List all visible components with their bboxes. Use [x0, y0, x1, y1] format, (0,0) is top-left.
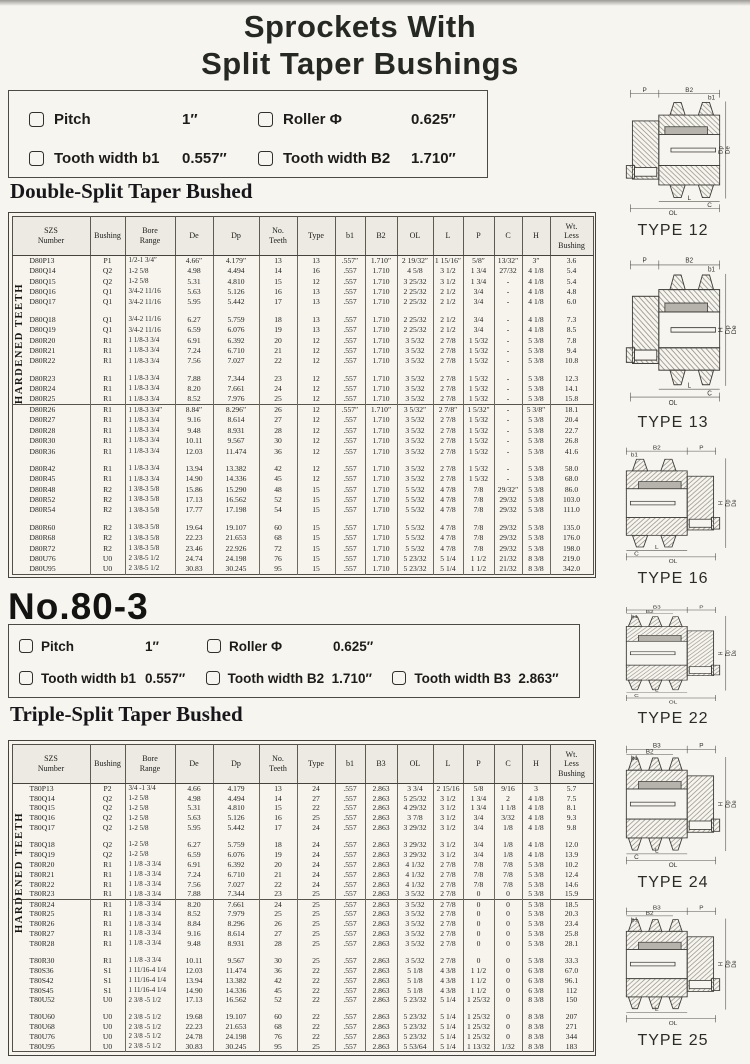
table-cell: 16	[259, 813, 297, 823]
table-cell: 0	[494, 909, 522, 919]
table-cell: .557	[335, 287, 365, 297]
table-row: T80R30R11 1/8 -3 3/410.119.5673025.5572.…	[12, 956, 593, 966]
table-cell: 2 7/8	[433, 899, 463, 909]
table-cell: R1	[90, 899, 125, 909]
table-cell: 176.0	[550, 533, 593, 543]
checkbox-icon	[258, 112, 273, 127]
table-cell: Q2	[90, 813, 125, 823]
table-cell: 2.863	[365, 880, 397, 890]
table-cell: 5 3/8	[522, 425, 550, 435]
table-cell: 2 7/8	[433, 929, 463, 939]
spec-label: Tooth width b1	[41, 671, 145, 686]
table-row: D80Q19Q13/4-2 11/166.596.0761913.5571.71…	[12, 325, 593, 335]
table-cell: 5 3/8	[522, 870, 550, 880]
table-cell: -	[494, 436, 522, 446]
table-cell: 25	[297, 899, 335, 909]
table-cell: R2	[90, 484, 125, 494]
spec-value: 0.625″	[333, 639, 373, 654]
table-cell: 2 7/8	[433, 384, 463, 394]
table-cell: 3 5/32	[397, 436, 433, 446]
table-cell: R1	[90, 394, 125, 404]
table-cell: 1 3/8-3 5/8	[125, 543, 175, 553]
table-cell: T80S45	[12, 985, 90, 995]
table-cell: 5 3/8	[522, 880, 550, 890]
table-cell: 68.0	[550, 474, 593, 484]
table-cell: 2 7/8″	[433, 405, 463, 415]
table-cell: 6 3/8	[522, 985, 550, 995]
table-cell: 96.1	[550, 976, 593, 986]
table-cell: 23.4	[550, 919, 593, 929]
table-cell: .557	[335, 909, 365, 919]
table-cell: 1-2 5/8	[125, 823, 175, 833]
table-cell: 1.710	[365, 335, 397, 345]
table-cell: 22	[297, 803, 335, 813]
table-cell: .557	[335, 564, 365, 574]
table-cell: 12.3	[550, 373, 593, 383]
table-cell: 14.336	[213, 474, 259, 484]
spec-label: Roller Φ	[283, 111, 411, 128]
table-cell: Q2	[90, 823, 125, 833]
table-cell: R1	[90, 956, 125, 966]
table-cell: 5 3/8	[522, 335, 550, 345]
table-row: T80R23R11 1/8 -3 3/47.887.3442325.5572.8…	[12, 889, 593, 899]
table-cell: 22	[297, 1032, 335, 1042]
table-cell: 103.0	[550, 495, 593, 505]
table-cell: .557	[335, 813, 365, 823]
table-cell: 1 1/8 -3 3/4	[125, 956, 175, 966]
table-row: T80R27R11 1/8 -3 3/49.168.6142725.5572.8…	[12, 929, 593, 939]
table-cell: 1 5/32	[463, 464, 494, 474]
svg-text:De: De	[731, 650, 738, 656]
column-header: OL	[397, 744, 433, 784]
table-row: D80R36R11 1/8-3 3/412.0311.4743612.5571.…	[12, 446, 593, 456]
table-cell: 5 3/8″	[522, 405, 550, 415]
table-cell: .557	[335, 346, 365, 356]
table-cell: 27	[297, 793, 335, 803]
table-cell: 30.83	[175, 1042, 213, 1052]
svg-text:b1: b1	[631, 453, 639, 459]
svg-text:De: De	[732, 499, 738, 507]
table-cell: .557	[335, 394, 365, 404]
table-cell: 22	[297, 966, 335, 976]
svg-text:L: L	[687, 195, 691, 202]
table-cell: 25	[297, 889, 335, 899]
table-cell: 3 5/32	[397, 956, 433, 966]
triple-split-table-wrap: SZS NumberBushingBore RangeDeDpNo. Teeth…	[8, 740, 596, 1056]
table-cell: 1 1/8-3 3/4″	[125, 405, 175, 415]
table-cell: 5 3/8	[522, 346, 550, 356]
header-row: SZS NumberBushingBore RangeDeDpNo. Teeth…	[12, 744, 593, 784]
table-cell: 1 1/2	[463, 554, 494, 564]
svg-text:P: P	[699, 446, 703, 452]
table-row: D80R60R21 3/8-3 5/819.6419.1076015.5571.…	[12, 522, 593, 532]
table-cell: 5.4	[550, 266, 593, 276]
table-cell: 4 7/8	[433, 505, 463, 515]
spec-label: Tooth width B2	[283, 150, 411, 167]
table-cell: 1 5/32	[463, 373, 494, 383]
table-cell: 3 1/2	[433, 276, 463, 286]
table-cell: 5.442	[213, 297, 259, 307]
table-cell: 1.710	[365, 356, 397, 366]
table-cell: 1 5/32	[463, 335, 494, 345]
table-cell: 2	[494, 793, 522, 803]
table-cell: -	[494, 425, 522, 435]
table-cell: 25	[259, 909, 297, 919]
table-row: D80U95U02 3/8-5 1/230.8330.2459515.5571.…	[12, 564, 593, 574]
table-row: T80S36S11 11/16-4 1/412.0311.4743622.557…	[12, 966, 593, 976]
table-cell: T80R30	[12, 956, 90, 966]
table-cell: 22	[297, 976, 335, 986]
table-cell: 1.710	[365, 564, 397, 574]
column-header: L	[433, 744, 463, 784]
table-cell: 2 7/8	[433, 394, 463, 404]
table-cell: 25	[297, 1042, 335, 1052]
table-cell: 4 1/8	[522, 813, 550, 823]
table-cell: 4.66	[175, 784, 213, 794]
table-cell: 6 3/8	[522, 976, 550, 986]
svg-text:OL: OL	[669, 1021, 678, 1026]
table-cell: 1.710	[365, 522, 397, 532]
type-12-label: TYPE 12	[602, 222, 744, 240]
table-cell: 2.863	[365, 985, 397, 995]
table-cell: 4 1/8	[522, 823, 550, 833]
checkbox-icon	[258, 151, 273, 166]
table-cell: 76	[259, 1032, 297, 1042]
table-cell: .557	[335, 939, 365, 949]
table-cell: 28.1	[550, 939, 593, 949]
table-cell: S1	[90, 985, 125, 995]
table-cell: 6.27	[175, 314, 213, 324]
table-cell: 18.5	[550, 899, 593, 909]
header-row: SZS NumberBushingBore RangeDeDpNo. Teeth…	[12, 216, 593, 256]
table-cell: 13	[297, 297, 335, 307]
table-cell: 2.863	[365, 870, 397, 880]
table-cell: 13.9	[550, 850, 593, 860]
table-cell: 1.710	[365, 266, 397, 276]
table-cell: 45	[259, 474, 297, 484]
table-cell: 2.863	[365, 1022, 397, 1032]
table-cell: 8.614	[213, 415, 259, 425]
table-cell: 3 1/2	[433, 266, 463, 276]
table-cell: 1 13/32	[463, 1042, 494, 1052]
table-cell: .557	[335, 436, 365, 446]
spec-box-double: Pitch1″Roller Φ0.625″Tooth width b10.557…	[8, 90, 488, 178]
table-cell: .557	[335, 793, 365, 803]
table-cell: 19	[259, 325, 297, 335]
table-cell: 2 15/16	[433, 784, 463, 794]
column-header: H	[522, 216, 550, 256]
table-cell: 8.84	[175, 919, 213, 929]
table-cell: 5.95	[175, 823, 213, 833]
table-cell: 0	[494, 956, 522, 966]
table-cell: 36	[259, 966, 297, 976]
table-cell: 1.710	[365, 346, 397, 356]
table-cell: -	[494, 356, 522, 366]
table-cell: 19	[259, 850, 297, 860]
table-cell: .557	[335, 870, 365, 880]
table-cell: 7/8	[494, 870, 522, 880]
table-cell: 12.4	[550, 870, 593, 880]
table-cell: 1 1/8 -3 3/4	[125, 889, 175, 899]
table-row: T80R24R11 1/8 -3 3/48.207.6612425.5572.8…	[12, 899, 593, 909]
table-cell: 4 7/8	[433, 533, 463, 543]
spec-value: 0.557″	[145, 671, 185, 686]
table-row: D80R24R11 1/8-3 3/48.207.6612412.5571.71…	[12, 384, 593, 394]
table-cell: 27	[259, 415, 297, 425]
svg-text:b1: b1	[631, 918, 639, 924]
table-cell: -	[494, 373, 522, 383]
data-table: SZS NumberBushingBore RangeDeDpNo. Teeth…	[12, 744, 594, 1053]
type-25-label: TYPE 25	[602, 1032, 744, 1050]
table-cell: 3 5/32	[397, 446, 433, 456]
svg-text:De: De	[731, 800, 738, 808]
hardened-teeth-label-2: HARDENED TEETH	[14, 812, 25, 933]
table-cell: -	[494, 325, 522, 335]
table-cell: P2	[90, 784, 125, 794]
table-cell: 4 7/8	[433, 495, 463, 505]
table-cell: 1 1/8-3 3/4	[125, 356, 175, 366]
table-cell: 4 1/8	[522, 793, 550, 803]
table-cell: 23	[259, 373, 297, 383]
table-cell: U0	[90, 1032, 125, 1042]
table-cell: 1 1/8-3 3/4	[125, 436, 175, 446]
table-cell: D80R72	[12, 543, 90, 553]
column-header: De	[175, 744, 213, 784]
table-cell: 1 1/8-3 3/4	[125, 346, 175, 356]
table-cell: R1	[90, 909, 125, 919]
table-cell: 0	[463, 899, 494, 909]
table-cell: T80U95	[12, 1042, 90, 1052]
table-cell: 3 3/4	[397, 784, 433, 794]
spec-label: Tooth width B2	[228, 671, 332, 686]
table-cell: 4 3/8	[433, 966, 463, 976]
table-cell: Q1	[90, 314, 125, 324]
table-cell: T80U60	[12, 1012, 90, 1022]
table-cell: 0	[494, 939, 522, 949]
table-cell: 8.931	[213, 939, 259, 949]
table-cell: 1.710	[365, 325, 397, 335]
table-cell: 3 7/8	[397, 813, 433, 823]
table-cell: 5 53/64	[397, 1042, 433, 1052]
svg-text:De: De	[724, 146, 731, 154]
table-cell: 7/8	[494, 880, 522, 890]
table-cell: 25	[297, 909, 335, 919]
table-cell: S1	[90, 976, 125, 986]
table-cell: 19.64	[175, 522, 213, 532]
spec-item: Pitch1″	[29, 111, 258, 128]
table-cell: 14.90	[175, 985, 213, 995]
table-cell: 5 3/8	[522, 356, 550, 366]
table-cell: 3 1/2	[433, 803, 463, 813]
table-cell: 22.23	[175, 1022, 213, 1032]
table-cell: 1.710	[365, 276, 397, 286]
table-cell: 14.1	[550, 384, 593, 394]
table-cell: 2 7/8	[433, 464, 463, 474]
table-cell: 86.0	[550, 484, 593, 494]
table-cell: 13/32″	[494, 256, 522, 266]
table-cell: 3 1/2	[433, 793, 463, 803]
table-cell: 8.931	[213, 425, 259, 435]
table-cell: 2.863	[365, 919, 397, 929]
svg-text:C: C	[634, 854, 639, 861]
table-cell: 5 1/4	[433, 1032, 463, 1042]
table-cell: 9.16	[175, 415, 213, 425]
table-cell: 42	[259, 464, 297, 474]
table-cell: 5 1/4	[433, 995, 463, 1005]
table-cell: 2 7/8	[433, 889, 463, 899]
table-cell: 22	[259, 356, 297, 366]
table-cell: R1	[90, 880, 125, 890]
table-cell: 1 3/8-3 5/8	[125, 484, 175, 494]
group-spacer	[12, 833, 593, 840]
table-cell: 0	[494, 1022, 522, 1032]
table-cell: 7.976	[213, 394, 259, 404]
type-25-diagram: B3B2b1PHDpDeLOL	[602, 904, 744, 1031]
table-cell: 6 3/8	[522, 966, 550, 976]
table-cell: 3 25/32	[397, 276, 433, 286]
svg-text:C: C	[634, 694, 639, 699]
table-cell: 9.48	[175, 425, 213, 435]
table-cell: R1	[90, 464, 125, 474]
table-cell: 8 3/8	[522, 564, 550, 574]
svg-text:b1: b1	[708, 266, 715, 273]
table-cell: 7.5	[550, 793, 593, 803]
table-cell: 24.198	[213, 1032, 259, 1042]
table-cell: 7.88	[175, 889, 213, 899]
table-cell: 3/4	[463, 840, 494, 850]
svg-text:P: P	[699, 605, 704, 610]
table-cell: 54	[259, 505, 297, 515]
table-cell: 1.710	[365, 484, 397, 494]
table-cell: 5.126	[213, 287, 259, 297]
table-cell: 17.198	[213, 505, 259, 515]
checkbox-icon	[19, 639, 33, 653]
column-header: OL	[397, 216, 433, 256]
table-cell: R1	[90, 889, 125, 899]
table-cell: 5.31	[175, 803, 213, 813]
svg-text:B2: B2	[646, 748, 654, 755]
table-cell: 4 3/8	[433, 976, 463, 986]
table-cell: T80U68	[12, 1022, 90, 1032]
table-cell: 18	[259, 840, 297, 850]
table-cell: 10.11	[175, 956, 213, 966]
table-cell: .557	[335, 474, 365, 484]
table-cell: 2.863	[365, 956, 397, 966]
table-cell: T80S36	[12, 966, 90, 976]
column-header: Bore Range	[125, 216, 175, 256]
table-cell: 7.344	[213, 373, 259, 383]
table-cell: 17.77	[175, 505, 213, 515]
table-cell: .557	[335, 384, 365, 394]
table-cell: 5 3/8	[522, 436, 550, 446]
table-cell: 21/32	[494, 564, 522, 574]
table-cell: 1-2 5/8	[125, 266, 175, 276]
table-cell: 24.78	[175, 1032, 213, 1042]
table-cell: 1 15/16″	[433, 256, 463, 266]
svg-text:H: H	[718, 501, 724, 505]
table-cell: 7.88	[175, 373, 213, 383]
table-cell: 19.107	[213, 522, 259, 532]
table-cell: Q1	[90, 325, 125, 335]
table-cell: 95	[259, 1042, 297, 1052]
table-cell: .557	[335, 803, 365, 813]
table-cell: 9.567	[213, 956, 259, 966]
table-cell: 4 1/8	[522, 803, 550, 813]
table-cell: 12	[297, 394, 335, 404]
table-cell: .557	[335, 889, 365, 899]
svg-text:C: C	[707, 390, 712, 397]
table-cell: 12	[297, 474, 335, 484]
table-cell: 22	[297, 985, 335, 995]
table-cell: R1	[90, 425, 125, 435]
table-cell: 2.863	[365, 976, 397, 986]
svg-text:P: P	[642, 87, 646, 94]
table-cell: 5 3/8	[522, 464, 550, 474]
table-cell: -	[494, 415, 522, 425]
table-cell: 41.6	[550, 446, 593, 456]
table-cell: 2.863	[365, 1012, 397, 1022]
table-cell: .557	[335, 919, 365, 929]
table-cell: 2 7/8	[433, 880, 463, 890]
table-cell: .557	[335, 522, 365, 532]
table-cell: 3/4	[463, 297, 494, 307]
table-cell: 2 3/8-5 1/2	[125, 564, 175, 574]
table-cell: 27/32	[494, 266, 522, 276]
table-cell: 2.863	[365, 909, 397, 919]
table-cell: 2 3/8 -5 1/2	[125, 1022, 175, 1032]
table-row: T80Q16Q21-2 5/85.635.1261625.5572.8633 7…	[12, 813, 593, 823]
table-cell: 3 5/32	[397, 384, 433, 394]
table-cell: 2 1/2	[433, 297, 463, 307]
table-cell: 20.4	[550, 415, 593, 425]
table-cell: .557	[335, 1032, 365, 1042]
table-cell: 3/4 -1 3/4	[125, 784, 175, 794]
table-cell: 14	[259, 266, 297, 276]
spec-row: Tooth width b10.557″Tooth width B21.710″	[29, 139, 487, 178]
table-cell: 26	[259, 405, 297, 415]
column-header: Dp	[213, 744, 259, 784]
table-cell: 95	[259, 564, 297, 574]
table-cell: R1	[90, 860, 125, 870]
table-row: T80Q17Q21-2 5/85.955.4421724.5572.8633 2…	[12, 823, 593, 833]
table-cell: 3/4-2 11/16	[125, 297, 175, 307]
table-cell: 15	[297, 522, 335, 532]
table-row: T80Q15Q21-2 5/85.314.8101522.5572.8634 2…	[12, 803, 593, 813]
table-cell: 6.392	[213, 335, 259, 345]
table-cell: 5 3/8	[522, 533, 550, 543]
table-cell: .557	[335, 1042, 365, 1052]
table-cell: -	[494, 474, 522, 484]
column-header: H	[522, 744, 550, 784]
catalog-page: Sprockets With Split Taper Bushings Pitc…	[0, 0, 750, 1064]
table-cell: .557	[335, 860, 365, 870]
table-cell: 21/32	[494, 554, 522, 564]
table-cell: 7.661	[213, 384, 259, 394]
table-cell: 9.48	[175, 939, 213, 949]
table-cell: 13	[259, 784, 297, 794]
table-cell: 25.8	[550, 929, 593, 939]
table-cell: 1 5/32	[463, 436, 494, 446]
table-cell: Q2	[90, 276, 125, 286]
column-header: P	[463, 744, 494, 784]
table-cell: 1.710	[365, 297, 397, 307]
table-cell: 36	[259, 446, 297, 456]
table-row: D80Q14Q21-2 5/84.984.4941416.5571.7104 5…	[12, 266, 593, 276]
table-cell: 7.24	[175, 346, 213, 356]
table-cell: 4 1/8	[522, 850, 550, 860]
table-cell: D80R45	[12, 474, 90, 484]
table-cell: 3 29/32	[397, 850, 433, 860]
